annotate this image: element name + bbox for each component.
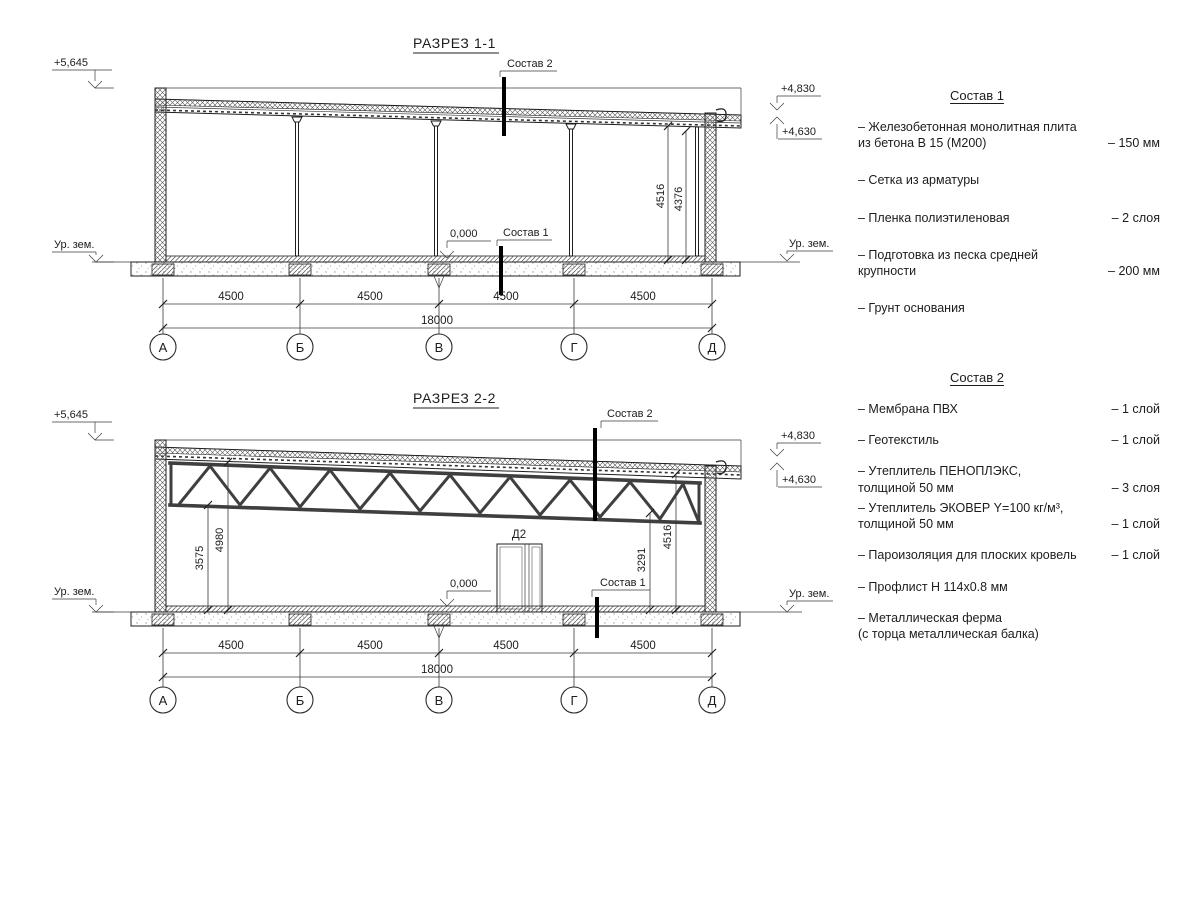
- item-name: – Металлическая ферма (с торца металличе…: [858, 610, 1039, 643]
- composition-panel-1: Состав 1 – Железобетонная монолитная пли…: [858, 88, 1160, 338]
- item-name: – Подготовка из песка средней крупности: [858, 247, 1038, 280]
- span-dimensions: 4500 4500 4500 4500 18000: [159, 278, 716, 334]
- svg-text:4500: 4500: [357, 291, 383, 303]
- svg-text:+5,645: +5,645: [54, 57, 88, 69]
- floor-screed: [166, 256, 705, 262]
- composition-item: – Мембрана ПВХ – 1 слой: [858, 401, 1160, 417]
- item-value: – 1 слой: [1104, 516, 1160, 532]
- svg-text:Состав 1: Состав 1: [503, 227, 549, 239]
- ground-mark-right: Ур. зем.: [780, 238, 833, 261]
- composition-item: – Сетка из арматуры: [858, 172, 1160, 188]
- svg-text:4980: 4980: [214, 528, 226, 552]
- zero-level-mark: 0,000: [440, 578, 491, 606]
- height-dimension: 4516 4376: [655, 122, 690, 264]
- item-name: – Грунт основания: [858, 300, 965, 316]
- item-value: – 1 слой: [1104, 432, 1160, 448]
- elevation-mark-right-bottom: +4,630: [770, 463, 822, 487]
- elevation-mark-right-top: +4,830: [770, 430, 821, 456]
- svg-text:+4,630: +4,630: [782, 474, 816, 486]
- composition-panel-2: Состав 2 – Мембрана ПВХ – 1 слой – Геоте…: [858, 370, 1160, 657]
- item-value: – 1 слой: [1104, 401, 1160, 417]
- svg-text:Состав 2: Состав 2: [507, 58, 553, 70]
- composition-item: – Профлист Н 114х0.8 мм: [858, 579, 1160, 595]
- svg-text:0,000: 0,000: [450, 228, 478, 240]
- composition-2-title: Состав 2: [858, 370, 1096, 387]
- axis-label: Б: [296, 340, 305, 355]
- elevation-mark-left: +5,645: [52, 57, 114, 88]
- axis-label: А: [159, 340, 168, 355]
- axis-bubbles: А Б В Г Д: [150, 334, 725, 360]
- svg-text:+4,830: +4,830: [781, 430, 815, 442]
- svg-text:Ур. зем.: Ур. зем.: [54, 586, 94, 598]
- height-dimension: 3575 4980 3291 4516: [194, 458, 680, 614]
- item-name: – Пароизоляция для плоских кровель: [858, 547, 1077, 563]
- axis-label: Г: [570, 340, 577, 355]
- section-title: РАЗРЕЗ 2-2: [413, 390, 496, 406]
- axis-label: В: [435, 340, 444, 355]
- svg-text:Ур. зем.: Ур. зем.: [54, 239, 94, 251]
- section-2: РАЗРЕЗ 2-2 Д2: [52, 390, 833, 713]
- ground-mark-left: Ур. зем.: [52, 239, 114, 262]
- composition-item: – Грунт основания: [858, 300, 1160, 316]
- item-value: – 3 слоя: [1104, 480, 1160, 496]
- door: Д2: [497, 529, 542, 612]
- item-name: – Железобетонная монолитная плита из бет…: [858, 119, 1077, 152]
- item-value: – 200 мм: [1100, 263, 1160, 279]
- svg-text:+5,645: +5,645: [54, 409, 88, 421]
- elevation-mark-left: +5,645: [52, 409, 114, 440]
- svg-text:Ур. зем.: Ур. зем.: [789, 238, 829, 250]
- svg-text:18000: 18000: [421, 664, 453, 676]
- section-1: РАЗРЕЗ 1-1: [52, 35, 833, 360]
- composition-item: – Железобетонная монолитная плита из бет…: [858, 119, 1160, 152]
- composition-item: – Подготовка из песка средней крупности …: [858, 247, 1160, 280]
- axis-label: Д: [708, 693, 717, 708]
- axis-label: А: [159, 693, 168, 708]
- svg-text:3575: 3575: [194, 546, 206, 570]
- composition-item: – Утеплитель ЭКОВЕР Y=100 кг/м³, толщино…: [858, 500, 1160, 533]
- elevation-mark-right-bottom: +4,630: [770, 117, 822, 139]
- item-name: – Геотекстиль: [858, 432, 939, 448]
- section-title: РАЗРЕЗ 1-1: [413, 35, 496, 51]
- ground-mark-right: Ур. зем.: [780, 588, 833, 612]
- svg-text:4500: 4500: [493, 291, 519, 303]
- svg-text:4500: 4500: [630, 640, 656, 652]
- axis-label: Д: [708, 340, 717, 355]
- svg-text:Состав 2: Состав 2: [607, 408, 653, 420]
- composition-1-title: Состав 1: [858, 88, 1096, 105]
- item-name: – Профлист Н 114х0.8 мм: [858, 579, 1008, 595]
- elevation-mark-right-top: +4,830: [770, 83, 821, 110]
- svg-text:4500: 4500: [218, 291, 244, 303]
- svg-text:4516: 4516: [655, 184, 667, 208]
- composition-item: – Утеплитель ПЕНОПЛЭКС, толщиной 50 мм –…: [858, 463, 1160, 496]
- zero-level-mark: 0,000: [440, 228, 491, 258]
- svg-text:4376: 4376: [673, 187, 685, 211]
- svg-text:18000: 18000: [421, 315, 453, 327]
- svg-text:+4,830: +4,830: [781, 83, 815, 95]
- item-name: – Пленка полиэтиленовая: [858, 210, 1010, 226]
- door-label: Д2: [512, 529, 526, 541]
- axis-label: Б: [296, 693, 305, 708]
- axis-label: Г: [570, 693, 577, 708]
- composition-item: – Пленка полиэтиленовая – 2 слоя: [858, 210, 1160, 226]
- item-name: – Утеплитель ЭКОВЕР Y=100 кг/м³, толщино…: [858, 500, 1063, 533]
- sections-drawing: РАЗРЕЗ 1-1: [0, 0, 860, 730]
- svg-text:4500: 4500: [218, 640, 244, 652]
- item-name: – Утеплитель ПЕНОПЛЭКС, толщиной 50 мм: [858, 463, 1021, 496]
- axis-label: В: [435, 693, 444, 708]
- item-name: – Сетка из арматуры: [858, 172, 979, 188]
- callout-sostav2: Состав 2: [500, 58, 557, 136]
- left-wall: [155, 88, 166, 262]
- item-name: – Мембрана ПВХ: [858, 401, 958, 417]
- composition-item: – Металлическая ферма (с торца металличе…: [858, 610, 1160, 643]
- columns: [292, 117, 699, 256]
- right-wall: [705, 466, 716, 612]
- ground-mark-left: Ур. зем.: [52, 586, 114, 612]
- svg-text:3291: 3291: [636, 548, 648, 572]
- axis-bubbles: А Б В Г Д: [150, 687, 725, 713]
- right-wall: [705, 113, 716, 262]
- composition-item: – Геотекстиль – 1 слой: [858, 432, 1160, 448]
- svg-text:+4,630: +4,630: [782, 126, 816, 138]
- item-value: – 150 мм: [1100, 135, 1160, 151]
- composition-item: – Пароизоляция для плоских кровель – 1 с…: [858, 547, 1160, 563]
- floor-screed: [166, 606, 705, 612]
- svg-text:4500: 4500: [493, 640, 519, 652]
- svg-text:4516: 4516: [662, 525, 674, 549]
- svg-text:4500: 4500: [630, 291, 656, 303]
- item-value: – 2 слоя: [1104, 210, 1160, 226]
- svg-text:0,000: 0,000: [450, 578, 478, 590]
- truss-bottom-chord: [170, 505, 700, 523]
- svg-text:Ур. зем.: Ур. зем.: [789, 588, 829, 600]
- svg-text:Состав 1: Состав 1: [600, 577, 646, 589]
- span-dimensions: 4500 4500 4500 4500 18000: [159, 628, 716, 687]
- item-value: – 1 слой: [1104, 547, 1160, 563]
- left-wall: [155, 440, 166, 612]
- svg-text:4500: 4500: [357, 640, 383, 652]
